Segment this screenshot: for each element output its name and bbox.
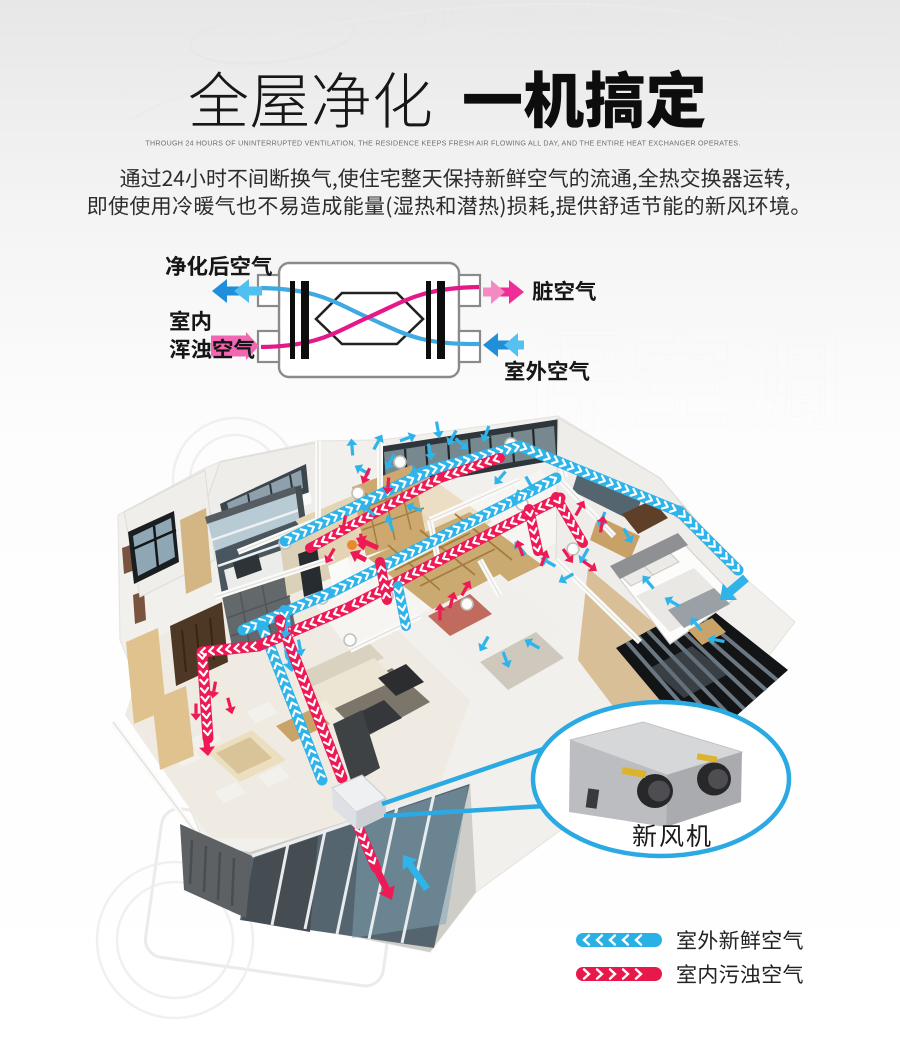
svg-text:THROUGH 24 HOURS OF UNINTERRUP: THROUGH 24 HOURS OF UNINTERRUPTED VENTIL… — [145, 140, 740, 148]
